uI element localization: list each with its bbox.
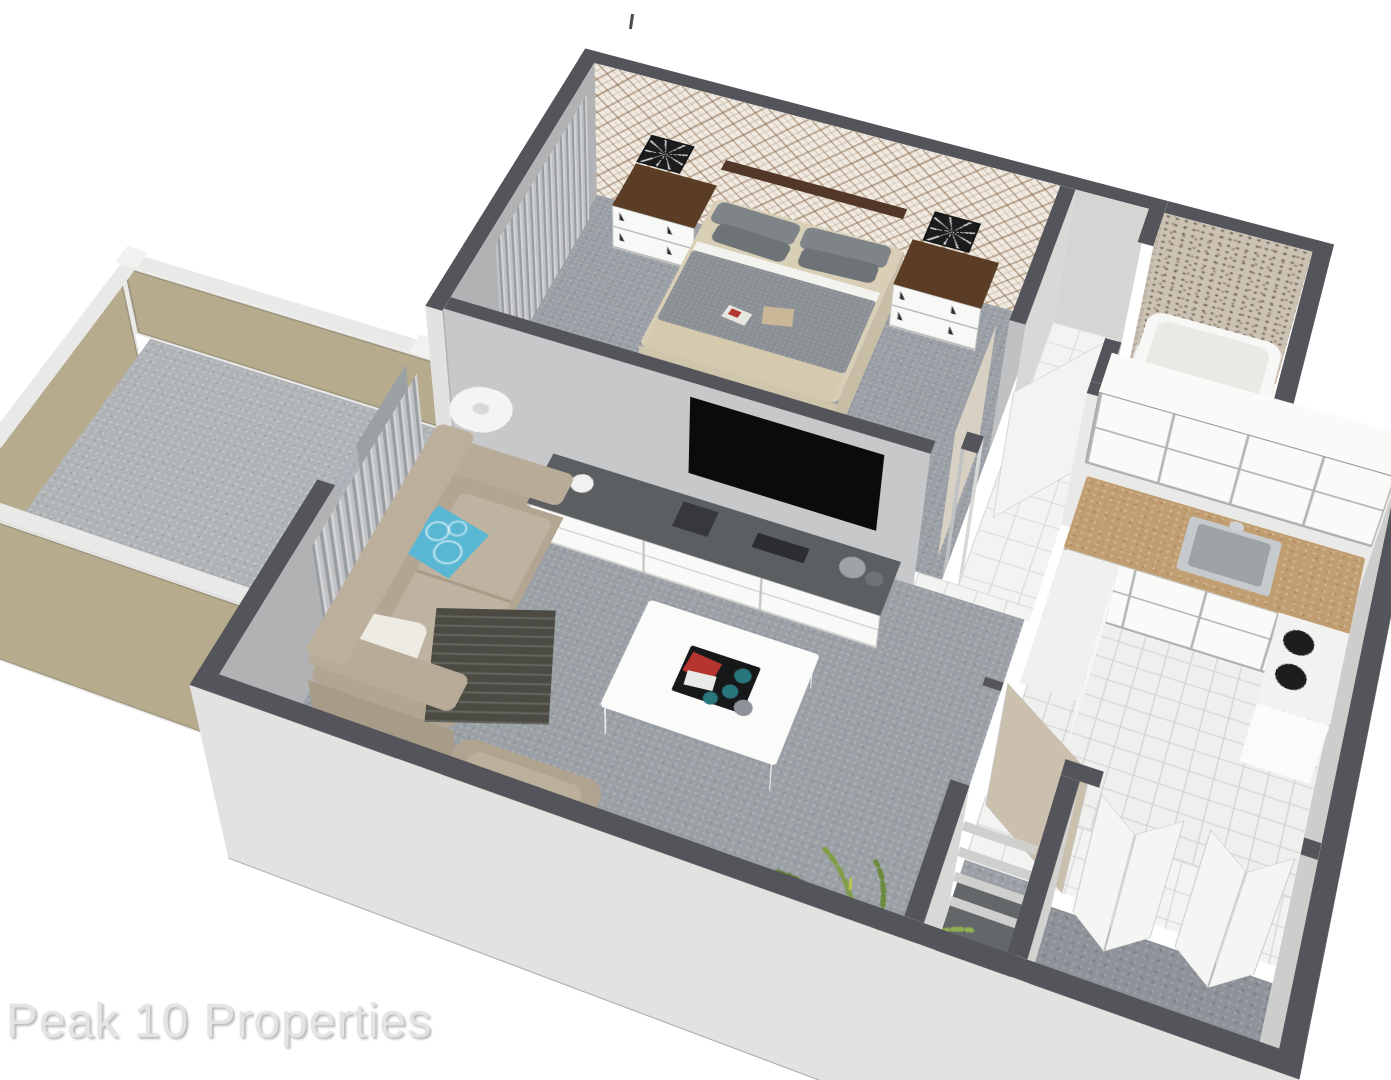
floorplan-scene xyxy=(0,0,1391,1080)
watermark-text: Peak 10 Properties xyxy=(6,994,432,1049)
floorplan-screenshot: Peak 10 Properties xyxy=(0,0,1391,1080)
bed-book xyxy=(762,306,795,327)
apartment-3d-plan xyxy=(206,180,1391,1080)
